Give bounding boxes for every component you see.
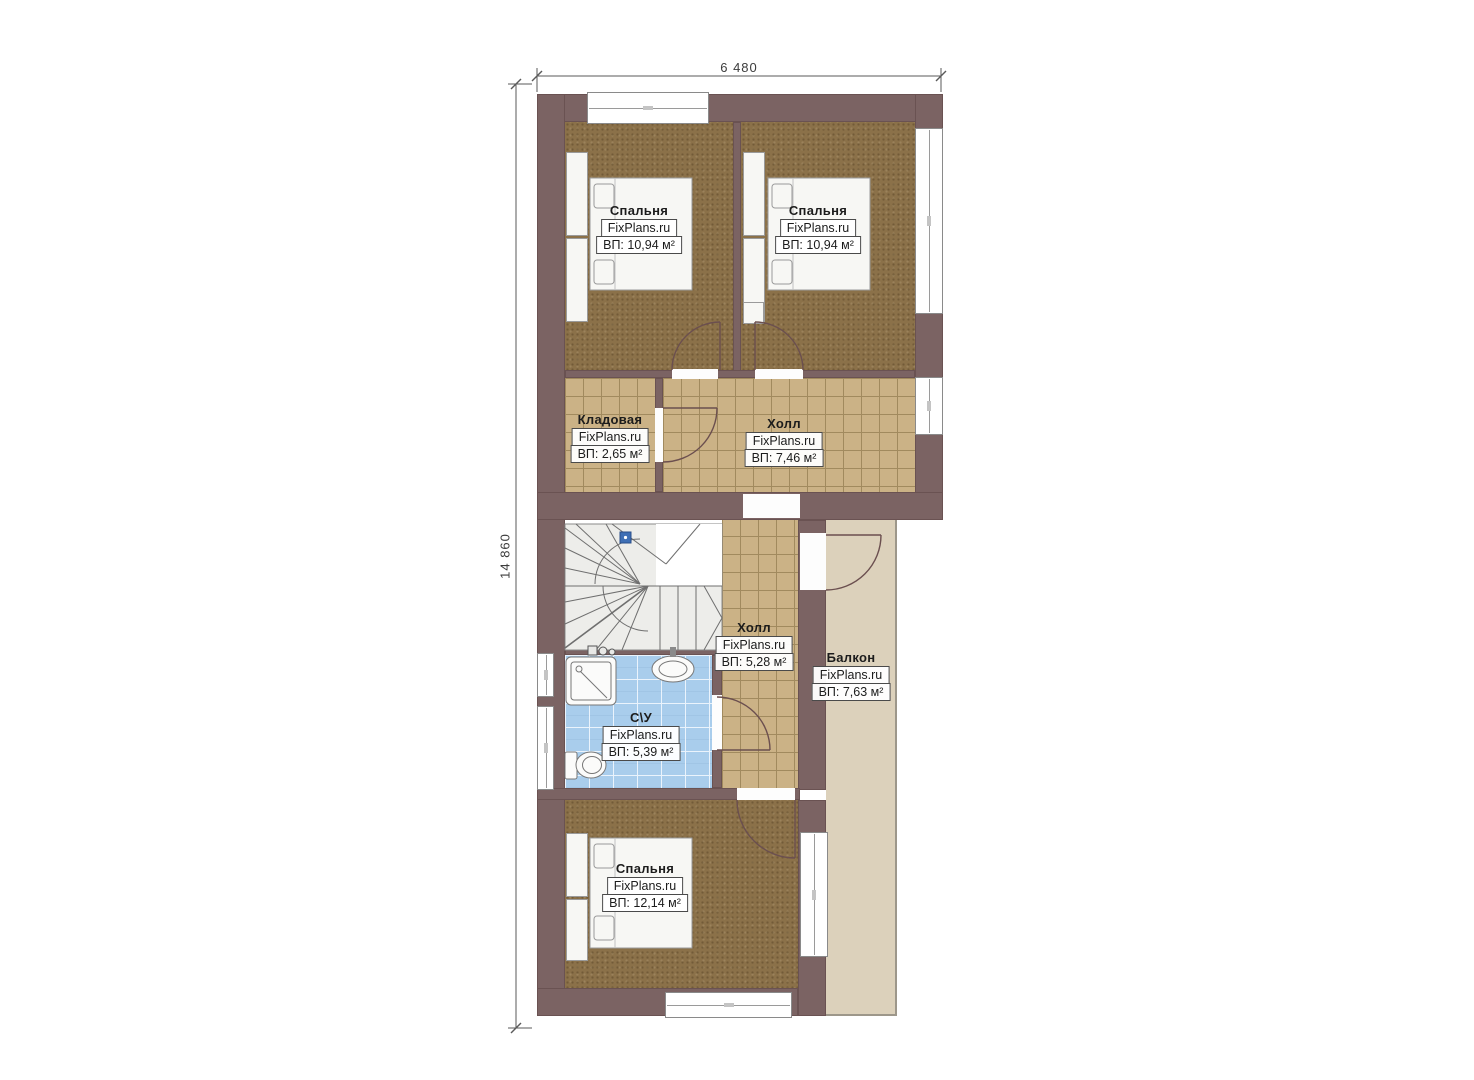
- floor-plan-sheet: 6 480 14 860 Спальня FixPlans.ru ВП: 10,…: [0, 0, 1474, 1080]
- room-area: ВП: 12,14 м²: [602, 894, 688, 912]
- wall-left: [537, 94, 565, 1016]
- window-bedroom-balcony: [800, 832, 828, 957]
- brand-label: FixPlans.ru: [813, 666, 890, 684]
- wall-bedrooms-hall: [565, 370, 915, 378]
- room-name: Кладовая: [571, 412, 650, 427]
- passage-hall-upper-lower: [743, 494, 800, 518]
- window-top: [587, 92, 709, 124]
- room-label-bathroom: С\У FixPlans.ru ВП: 5,39 м²: [602, 710, 681, 761]
- window-left-bathroom-1: [537, 653, 554, 697]
- window-bottom: [665, 992, 792, 1018]
- door-opening-bathroom: [712, 695, 722, 750]
- room-area: ВП: 2,65 м²: [571, 445, 650, 463]
- nightstand: [566, 833, 588, 897]
- wall-between-bedrooms: [733, 122, 741, 372]
- nightstand: [566, 899, 588, 961]
- wardrobe-niche: [743, 302, 764, 324]
- brand-label: FixPlans.ru: [603, 726, 680, 744]
- room-area: ВП: 7,63 м²: [812, 683, 891, 701]
- room-area: ВП: 10,94 м²: [596, 236, 682, 254]
- door-opening-bedroom-bottom: [737, 788, 795, 800]
- nightstand: [743, 152, 765, 236]
- door-opening-balcony: [800, 533, 826, 590]
- brand-label: FixPlans.ru: [780, 219, 857, 237]
- room-label-hall-lower: Холл FixPlans.ru ВП: 5,28 м²: [715, 620, 794, 671]
- dimension-height: 14 860: [498, 533, 513, 579]
- room-label-bedroom-bottom: Спальня FixPlans.ru ВП: 12,14 м²: [602, 861, 688, 912]
- floor-balcony: [826, 520, 897, 1016]
- room-label-bedroom-top-right: Спальня FixPlans.ru ВП: 10,94 м²: [775, 203, 861, 254]
- window-left-bathroom-2: [537, 706, 554, 790]
- room-area: ВП: 5,39 м²: [602, 743, 681, 761]
- room-label-balcony: Балкон FixPlans.ru ВП: 7,63 м²: [812, 650, 891, 701]
- brand-label: FixPlans.ru: [716, 636, 793, 654]
- wall-stairs-bathroom: [565, 648, 722, 655]
- room-label-storage: Кладовая FixPlans.ru ВП: 2,65 м²: [571, 412, 650, 463]
- brand-label: FixPlans.ru: [746, 432, 823, 450]
- room-area: ВП: 5,28 м²: [715, 653, 794, 671]
- room-area: ВП: 10,94 м²: [775, 236, 861, 254]
- nightstand: [566, 238, 588, 322]
- brand-label: FixPlans.ru: [601, 219, 678, 237]
- room-name: Спальня: [775, 203, 861, 218]
- room-area: ВП: 7,46 м²: [745, 449, 824, 467]
- door-opening-storage: [655, 408, 663, 462]
- room-name: Холл: [715, 620, 794, 635]
- room-label-hall-upper: Холл FixPlans.ru ВП: 7,46 м²: [745, 416, 824, 467]
- brand-label: FixPlans.ru: [607, 877, 684, 895]
- dimension-width: 6 480: [720, 60, 758, 75]
- staircase: [565, 524, 722, 650]
- brand-label: FixPlans.ru: [572, 428, 649, 446]
- window-right-bedroom: [915, 128, 943, 314]
- room-name: Балкон: [812, 650, 891, 665]
- room-name: Спальня: [602, 861, 688, 876]
- room-name: Спальня: [596, 203, 682, 218]
- nightstand: [566, 152, 588, 236]
- door-opening-bedroom-top-left: [672, 369, 718, 379]
- room-label-bedroom-top-left: Спальня FixPlans.ru ВП: 10,94 м²: [596, 203, 682, 254]
- wall-upper-block-bottom: [537, 492, 943, 520]
- window-right-hall: [915, 377, 943, 435]
- door-opening-bedroom-top-right: [755, 369, 803, 379]
- room-name: С\У: [602, 710, 681, 725]
- room-name: Холл: [745, 416, 824, 431]
- stair-level-marker: [620, 532, 631, 543]
